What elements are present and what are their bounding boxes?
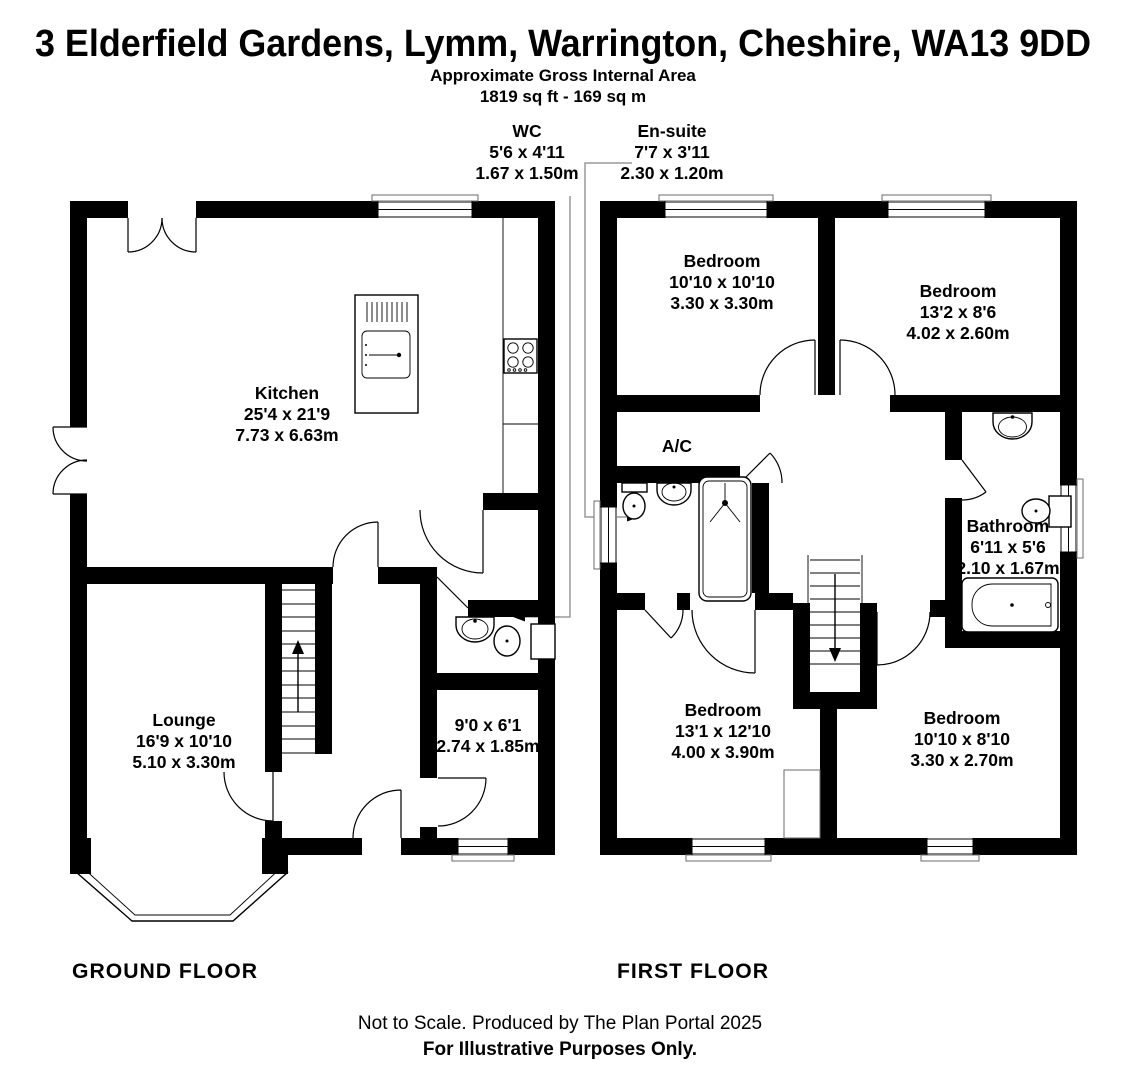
ensuite-name: En-suite	[637, 121, 706, 141]
bedroom3-metric: 4.00 x 3.90m	[671, 742, 774, 762]
bedroom3-label: Bedroom 13'1 x 12'10 4.00 x 3.90m	[671, 700, 774, 762]
wc-metric: 1.67 x 1.50m	[475, 163, 578, 183]
bedroom4-imperial: 10'10 x 8'10	[914, 729, 1010, 749]
bedroom3-name: Bedroom	[685, 700, 762, 720]
bedroom3-window	[686, 838, 771, 861]
ensuite-sink-icon	[657, 483, 691, 505]
ensuite-window	[594, 501, 617, 569]
bathtub-icon	[962, 578, 1058, 632]
lounge-label: Lounge 16'9 x 10'10 5.10 x 3.30m	[132, 710, 235, 772]
wc-name: WC	[512, 121, 542, 141]
kitchen-hall-door	[333, 522, 378, 567]
bedroom3-imperial: 13'1 x 12'10	[675, 721, 771, 741]
lounge-name: Lounge	[152, 710, 215, 730]
ground-floor-plan: Kitchen 25'4 x 21'9 7.73 x 6.63m Lounge …	[53, 195, 555, 921]
shower-icon	[699, 477, 751, 601]
stairs-up-arrow-icon	[292, 640, 304, 654]
bedroom1-window	[659, 195, 773, 218]
bedroom2-door	[840, 340, 895, 395]
bedroom1-label: Bedroom 10'10 x 10'10 3.30 x 3.30m	[669, 251, 775, 313]
bedroom1-imperial: 10'10 x 10'10	[669, 272, 775, 292]
kitchen-label: Kitchen 25'4 x 21'9 7.73 x 6.63m	[235, 383, 338, 445]
bedroom2-metric: 4.02 x 2.60m	[906, 323, 1009, 343]
footer-disclaimer: Not to Scale. Produced by The Plan Porta…	[358, 1013, 762, 1034]
kitchen-island	[355, 295, 418, 413]
hob-icon	[504, 339, 537, 373]
bathroom-sink-icon	[993, 413, 1032, 439]
bedroom4-door	[877, 612, 930, 665]
bedroom1-metric: 3.30 x 3.30m	[670, 293, 773, 313]
first-floor-title: FIRST FLOOR	[617, 959, 769, 983]
kitchen-french-doors	[128, 218, 196, 252]
wc-callout-label: WC 5'6 x 4'11 1.67 x 1.50m	[475, 121, 578, 183]
bedroom4-name: Bedroom	[924, 708, 1001, 728]
floor-plan-drawing: 3 Elderfield Gardens, Lymm, Warrington, …	[0, 0, 1131, 1080]
store-imperial: 9'0 x 6'1	[455, 715, 522, 735]
bedroom1-name: Bedroom	[684, 251, 761, 271]
bedroom4-label: Bedroom 10'10 x 8'10 3.30 x 2.70m	[910, 708, 1013, 770]
wc-toilet-icon	[494, 624, 555, 659]
floor-plan-page: 3 Elderfield Gardens, Lymm, Warrington, …	[0, 0, 1131, 1080]
lounge-imperial: 16'9 x 10'10	[136, 731, 232, 751]
footer-illustrative-note: For Illustrative Purposes Only.	[423, 1039, 697, 1060]
kitchen-lobby-door	[420, 510, 483, 573]
front-door	[353, 790, 401, 838]
bathroom-name: Bathroom	[967, 516, 1050, 536]
header: 3 Elderfield Gardens, Lymm, Warrington, …	[35, 23, 1091, 106]
page-subtitle: Approximate Gross Internal Area	[430, 66, 696, 85]
bathroom-imperial: 6'11 x 5'6	[970, 537, 1046, 557]
bedroom1-door	[760, 340, 815, 395]
lounge-door	[224, 772, 273, 821]
page-title: 3 Elderfield Gardens, Lymm, Warrington, …	[35, 23, 1091, 65]
bathroom-door	[962, 460, 986, 500]
kitchen-metric: 7.73 x 6.63m	[235, 425, 338, 445]
lounge-metric: 5.10 x 3.30m	[132, 752, 235, 772]
ensuite-metric: 2.30 x 1.20m	[620, 163, 723, 183]
ground-floor-title: GROUND FLOOR	[72, 959, 258, 983]
first-floor-plan: Bedroom 10'10 x 10'10 3.30 x 3.30m Bedro…	[594, 195, 1083, 861]
bedroom4-window	[921, 838, 979, 861]
staircase-up	[282, 590, 315, 753]
ensuite-toilet-icon	[622, 483, 647, 519]
store-room-label: 9'0 x 6'1 2.74 x 1.85m	[436, 715, 539, 756]
patio-french-doors	[53, 427, 87, 494]
bedroom2-window	[882, 195, 991, 218]
ensuite-imperial: 7'7 x 3'11	[634, 142, 710, 162]
wc-sink-icon	[456, 617, 494, 642]
bathroom-metric: 2.10 x 1.67m	[956, 558, 1059, 578]
bedroom2-label: Bedroom 13'2 x 8'6 4.02 x 2.60m	[906, 281, 1009, 343]
bathroom-label: Bathroom 6'11 x 5'6 2.10 x 1.67m	[956, 516, 1059, 578]
bedroom2-imperial: 13'2 x 8'6	[920, 302, 997, 322]
gross-internal-area: 1819 sq ft - 169 sq m	[480, 87, 646, 106]
kitchen-window	[372, 195, 478, 218]
store-metric: 2.74 x 1.85m	[436, 736, 539, 756]
bedroom3-recess	[784, 770, 820, 838]
airing-cupboard-label: A/C	[662, 436, 693, 456]
ensuite-door	[645, 610, 683, 638]
bedroom3-door	[692, 610, 755, 673]
ensuite-callout-label: En-suite 7'7 x 3'11 2.30 x 1.20m	[620, 121, 723, 183]
bay-window	[76, 866, 288, 921]
kitchen-name: Kitchen	[255, 383, 319, 403]
bedroom4-metric: 3.30 x 2.70m	[910, 750, 1013, 770]
footer: Not to Scale. Produced by The Plan Porta…	[358, 1013, 762, 1060]
ensuite-room	[622, 477, 751, 601]
ground-floor-walls	[70, 201, 555, 874]
wc-imperial: 5'6 x 4'11	[489, 142, 565, 162]
stairs-down-arrow-icon	[829, 648, 841, 662]
store-door	[438, 778, 486, 826]
kitchen-imperial: 25'4 x 21'9	[244, 404, 330, 424]
staircase-down	[808, 555, 862, 664]
store-window	[452, 838, 514, 861]
bedroom2-name: Bedroom	[920, 281, 997, 301]
